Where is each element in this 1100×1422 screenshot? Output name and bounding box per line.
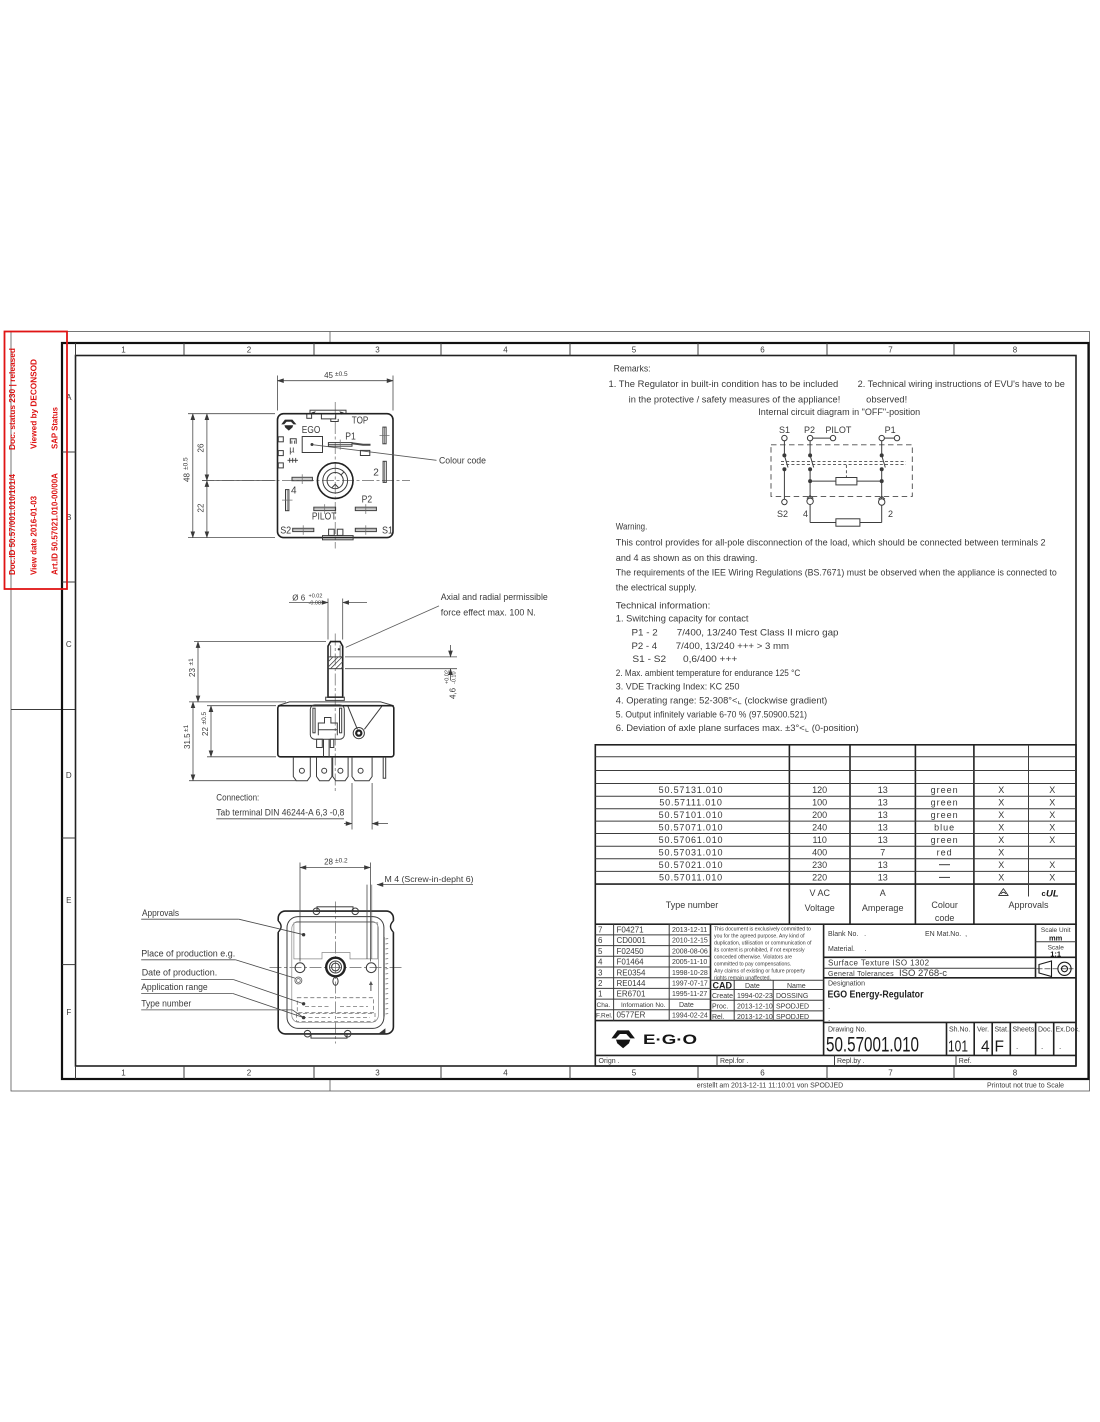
svg-text:X: X [998, 798, 1004, 808]
svg-text:Type number: Type number [666, 900, 719, 910]
svg-text:4: 4 [803, 509, 808, 519]
svg-text:Doc. status 230 | released: Doc. status 230 | released [8, 348, 17, 450]
svg-text:1:1: 1:1 [1050, 950, 1061, 959]
svg-text:13: 13 [878, 810, 888, 820]
svg-text:F.Rel.: F.Rel. [596, 1013, 613, 1020]
svg-text:3: 3 [375, 1069, 380, 1078]
svg-text:committed to pay compensations: committed to pay compensations. [714, 962, 791, 968]
svg-text:Any claims of existing or futu: Any claims of existing or future propert… [714, 969, 806, 975]
svg-text:X: X [1049, 873, 1055, 883]
svg-text:4: 4 [981, 1039, 990, 1056]
svg-text:erstellt am 2013-12-11 11:10:0: erstellt am 2013-12-11 11:10:01 von SPOD… [697, 1083, 843, 1090]
svg-text:400: 400 [812, 848, 827, 858]
svg-text:Sh.No.: Sh.No. [949, 1027, 970, 1034]
svg-text:230: 230 [812, 860, 827, 870]
svg-text:50.57071.010: 50.57071.010 [659, 823, 724, 833]
svg-text:.: . [1059, 1042, 1061, 1051]
svg-text:D: D [66, 771, 72, 780]
svg-text:4. Operating range: 52-308°<⌞: 4. Operating range: 52-308°<⌞ (clockwise… [616, 696, 828, 706]
svg-text:5. Output infinitely variable: 5. Output infinitely variable 6-70 % (97… [616, 710, 807, 720]
svg-text:Colour code: Colour code [439, 456, 486, 466]
svg-text:6: 6 [760, 346, 765, 355]
svg-text:2010-12-15: 2010-12-15 [672, 938, 708, 945]
svg-text:X: X [1049, 823, 1055, 833]
svg-text:22: 22 [201, 727, 210, 736]
svg-text:50.57101.010: 50.57101.010 [659, 810, 724, 820]
svg-text:P1: P1 [885, 425, 896, 435]
svg-text:2: 2 [247, 1069, 252, 1078]
svg-text:50.57061.010: 50.57061.010 [659, 835, 724, 845]
svg-text:S1: S1 [382, 525, 393, 536]
svg-text:Ex.Doc.: Ex.Doc. [1056, 1027, 1081, 1034]
svg-text:4: 4 [291, 486, 297, 497]
svg-text:and 4 as shown as on this draw: and 4 as shown as on this drawing. [616, 553, 758, 563]
svg-text:Connection:: Connection: [216, 793, 259, 803]
svg-text:4: 4 [503, 1069, 508, 1078]
svg-text:µ: µ [289, 445, 294, 455]
svg-text:View date 2016-01-03: View date 2016-01-03 [29, 495, 38, 575]
svg-text:SPODJED: SPODJED [776, 1014, 809, 1021]
svg-text:X: X [1049, 798, 1055, 808]
svg-text:7: 7 [598, 926, 603, 935]
svg-text:S1 - S2 0,6/400 +++: S1 - S2 0,6/400 +++ [632, 654, 737, 664]
svg-text:observed!: observed! [866, 395, 907, 405]
svg-text:Colour: Colour [931, 900, 958, 910]
svg-text:50.57131.010: 50.57131.010 [659, 785, 724, 795]
svg-text:X: X [1049, 835, 1055, 845]
svg-text:101: 101 [948, 1039, 968, 1056]
svg-text:5: 5 [598, 947, 603, 956]
svg-text:P2 - 4 7/400, 13/240 +++: P2 - 4 7/400, 13/240 +++ > 3 mm [632, 641, 790, 651]
svg-text:General Tolerances: General Tolerances [828, 971, 894, 978]
svg-text:This document is exclusively c: This document is exclusively committed t… [714, 927, 811, 933]
svg-text:7: 7 [888, 1069, 893, 1078]
svg-text:6: 6 [760, 1069, 765, 1078]
svg-text:S2: S2 [777, 509, 788, 519]
svg-text:PILOT: PILOT [312, 511, 337, 522]
svg-text:+0.02: +0.02 [445, 670, 451, 684]
svg-text:2. Max. ambient temperature f: 2. Max. ambient temperature for enduranc… [616, 668, 801, 678]
svg-text:F01464: F01464 [617, 958, 645, 967]
svg-text:8: 8 [1013, 346, 1018, 355]
svg-text:force effect max. 100 N.: force effect max. 100 N. [441, 608, 536, 618]
svg-text:1998-10-28: 1998-10-28 [672, 970, 708, 977]
svg-text:Drawing No.: Drawing No. [828, 1027, 867, 1034]
svg-text:48: 48 [183, 473, 192, 482]
svg-text:8: 8 [1013, 1069, 1018, 1078]
svg-text:2005-11-10: 2005-11-10 [672, 959, 707, 966]
svg-text:1997-07-17: 1997-07-17 [672, 981, 708, 988]
svg-text:X: X [1049, 785, 1055, 795]
svg-text:1: 1 [121, 1069, 126, 1078]
svg-text:X: X [998, 873, 1004, 883]
svg-text:Approvals: Approvals [1008, 900, 1049, 910]
svg-text:Sheets: Sheets [1013, 1027, 1035, 1034]
svg-text:22: 22 [197, 503, 206, 512]
svg-text:2: 2 [598, 979, 603, 988]
svg-text:1995-11-27: 1995-11-27 [672, 991, 707, 998]
svg-text:C: C [66, 640, 72, 649]
svg-text:-0.08: -0.08 [309, 600, 322, 606]
svg-text:TOP: TOP [352, 415, 369, 426]
svg-text:Technical information:: Technical information: [616, 601, 711, 611]
svg-text:+0.02: +0.02 [309, 593, 323, 599]
svg-text:110: 110 [813, 835, 827, 845]
svg-text:RE0144: RE0144 [617, 979, 646, 988]
svg-text:conceded otherwise. Violators: conceded otherwise. Violators are [714, 955, 792, 961]
svg-text:50.57021.010: 50.57021.010 [659, 860, 724, 870]
svg-text:X: X [998, 823, 1004, 833]
svg-text:50.57001.010: 50.57001.010 [826, 1034, 919, 1057]
svg-text:Type number: Type number [141, 998, 191, 1008]
svg-text:EGO: EGO [302, 425, 321, 436]
svg-text:Application range: Application range [141, 982, 208, 992]
svg-text:Ver.: Ver. [977, 1027, 989, 1034]
svg-text:Material. .: Material. . [828, 946, 867, 953]
svg-text:1994-02-24: 1994-02-24 [672, 1013, 708, 1020]
svg-text:DOSSING: DOSSING [776, 993, 808, 1000]
svg-text:4: 4 [503, 346, 508, 355]
svg-text:240: 240 [812, 823, 827, 833]
svg-text:0577ER: 0577ER [617, 1011, 646, 1020]
svg-text:±0.2: ±0.2 [335, 858, 348, 865]
svg-text:28: 28 [324, 858, 333, 867]
svg-text:Repl.by .: Repl.by . [837, 1058, 865, 1065]
svg-text:Ref.: Ref. [959, 1058, 972, 1065]
svg-text:X: X [998, 835, 1004, 845]
svg-text:13: 13 [878, 873, 888, 883]
svg-text:4: 4 [598, 958, 603, 967]
svg-text:Axial and radial permissible: Axial and radial permissible [441, 592, 548, 602]
svg-text:7: 7 [880, 848, 885, 858]
svg-text:P2: P2 [362, 494, 373, 505]
svg-text:Approvals: Approvals [142, 908, 179, 918]
svg-text:Information No.: Information No. [621, 1002, 666, 1009]
svg-text:Voltage: Voltage [805, 903, 835, 913]
svg-text:mm: mm [1049, 934, 1063, 943]
svg-text:ISO 2768-c: ISO 2768-c [899, 968, 947, 979]
svg-text:Printout not true to Scale: Printout not true to Scale [987, 1083, 1064, 1090]
svg-text:P1 - 2 7/400, 13/240 Tes: P1 - 2 7/400, 13/240 Test Class II micro… [632, 628, 839, 638]
svg-text:1: 1 [598, 990, 603, 999]
svg-text:Orign .: Orign . [599, 1058, 620, 1065]
svg-text:13: 13 [878, 835, 888, 845]
svg-text:you for the agreed purpose. An: you for the agreed purpose. Any kind of [714, 934, 805, 940]
svg-text:1. The Regulator in built-in c: 1. The Regulator in built-in condition h… [609, 379, 839, 389]
svg-text:5: 5 [632, 346, 637, 355]
svg-text:X: X [1049, 810, 1055, 820]
svg-text:the electrical supply.: the electrical supply. [616, 583, 697, 593]
svg-text:Stat.: Stat. [995, 1027, 1009, 1034]
svg-text:2: 2 [888, 509, 893, 519]
svg-text:EN Mat.No. ,: EN Mat.No. , [925, 931, 967, 938]
svg-text:Cha.: Cha. [597, 1002, 611, 1009]
svg-text:green: green [931, 810, 959, 820]
svg-text:Rel.: Rel. [712, 1014, 725, 1021]
svg-text:P1: P1 [345, 431, 356, 442]
svg-text:Surface Texture ISO 1302: Surface Texture ISO 1302 [828, 959, 930, 968]
svg-text:X: X [998, 810, 1004, 820]
svg-text:.: . [828, 1014, 830, 1023]
svg-text:3. VDE Tracking Index: KC 250: 3. VDE Tracking Index: KC 250 [616, 682, 740, 692]
svg-text:4,6: 4,6 [449, 687, 458, 699]
svg-text:2. Technical wiring instructio: 2. Technical wiring instructions of EVU'… [858, 379, 1065, 389]
svg-text:in the protective / safety mea: in the protective / safety measures of t… [629, 395, 841, 405]
svg-text:SPODJED: SPODJED [776, 1004, 809, 1011]
svg-text:green: green [931, 835, 959, 845]
svg-text:The requirements of the IEE Wi: The requirements of the IEE Wiring Regul… [616, 568, 1057, 578]
svg-text:RE0354: RE0354 [617, 968, 646, 977]
svg-text:Internal circuit diagram in "O: Internal circuit diagram in "OFF"-positi… [758, 407, 920, 417]
svg-text:2: 2 [373, 468, 379, 479]
svg-text:Proc.: Proc. [712, 1004, 728, 1011]
svg-text:2013-12-10: 2013-12-10 [737, 1004, 773, 1011]
svg-text:code: code [935, 913, 955, 923]
svg-text:CD0001: CD0001 [617, 936, 647, 945]
svg-text:X: X [998, 785, 1004, 795]
svg-text:green: green [931, 785, 959, 795]
svg-text:green: green [931, 798, 959, 808]
svg-text:±1: ±1 [183, 724, 190, 732]
svg-text:This control provides for all-: This control provides for all-pole disco… [616, 538, 1046, 548]
svg-text:ER6701: ER6701 [617, 990, 646, 999]
svg-text:50.57111.010: 50.57111.010 [659, 798, 722, 808]
svg-text:.: . [1016, 1042, 1018, 1051]
svg-text:its content is prohibited, if: its content is prohibited, if not expres… [714, 948, 805, 954]
svg-text:E·G·O: E·G·O [643, 1031, 697, 1047]
svg-text:13: 13 [878, 860, 888, 870]
svg-text:CAD: CAD [713, 981, 733, 991]
svg-text:Create: Create [712, 993, 733, 1000]
svg-text:220: 220 [812, 873, 827, 883]
svg-text:±1: ±1 [188, 658, 195, 666]
svg-text:1: 1 [121, 346, 126, 355]
svg-text:P2: P2 [804, 425, 815, 435]
svg-text:7: 7 [888, 346, 893, 355]
svg-text:EGO Energy-Regulator: EGO Energy-Regulator [828, 989, 924, 1001]
svg-text:Name: Name [787, 983, 806, 990]
svg-text:F: F [66, 1008, 71, 1017]
svg-text:Date of production.: Date of production. [142, 967, 218, 977]
svg-text:X: X [998, 848, 1004, 858]
svg-text:Repl.for .: Repl.for . [720, 1058, 748, 1065]
svg-text:Tab terminal DIN 46244-A 6,3 -: Tab terminal DIN 46244-A 6,3 -0,8 [216, 808, 344, 818]
svg-text:Ø 6: Ø 6 [292, 593, 305, 602]
svg-text:2013-12-10: 2013-12-10 [737, 1014, 773, 1021]
svg-text:Warning.: Warning. [616, 522, 648, 532]
svg-text:SAP Status: SAP Status [51, 406, 60, 449]
svg-text:-0.10: -0.10 [452, 671, 458, 684]
svg-text:X: X [998, 860, 1004, 870]
svg-text:M 4 (Screw-in-depht 6): M 4 (Screw-in-depht 6) [385, 875, 474, 884]
svg-text:UL: UL [1046, 889, 1059, 900]
svg-text:±0.5: ±0.5 [201, 712, 208, 725]
svg-text:.: . [828, 1002, 830, 1011]
svg-text:Date: Date [745, 983, 760, 990]
svg-text:200: 200 [812, 810, 827, 820]
svg-text:13: 13 [878, 798, 888, 808]
svg-text:13: 13 [878, 785, 888, 795]
svg-text:3: 3 [375, 346, 380, 355]
svg-text:6. Deviation of axle plane su: 6. Deviation of axle plane surfaces max.… [616, 723, 859, 733]
svg-text:red: red [937, 848, 953, 858]
svg-text:5: 5 [632, 1069, 637, 1078]
svg-text:E: E [66, 896, 71, 905]
svg-text:45: 45 [324, 371, 333, 380]
svg-text:26: 26 [197, 443, 206, 452]
svg-text:23: 23 [188, 668, 197, 677]
svg-text:50.57011.010: 50.57011.010 [659, 873, 723, 883]
svg-text:duplication, utilisation or co: duplication, utilisation or communicatio… [714, 941, 812, 947]
svg-text:S1: S1 [779, 425, 790, 435]
svg-text:2: 2 [247, 346, 252, 355]
svg-text:Remarks:: Remarks: [614, 364, 651, 374]
svg-text:120: 120 [812, 785, 827, 795]
svg-text:Doc.ID 50.57/001.010/101/4: Doc.ID 50.57/001.010/101/4 [8, 473, 17, 575]
svg-text:3: 3 [598, 968, 603, 977]
svg-text:50.57031.010: 50.57031.010 [659, 848, 724, 858]
svg-text:Place of production e.g.: Place of production e.g. [141, 948, 235, 958]
svg-text:F02450: F02450 [617, 947, 645, 956]
svg-text:PILOT: PILOT [825, 425, 852, 435]
svg-text:F: F [995, 1039, 1004, 1056]
svg-text:2013-12-11: 2013-12-11 [672, 927, 707, 934]
svg-text:1994-02-23: 1994-02-23 [737, 993, 773, 1000]
svg-text:Blank No. .: Blank No. . [828, 931, 866, 938]
svg-text:V AC: V AC [809, 888, 830, 898]
svg-text:Amperage: Amperage [862, 903, 904, 913]
svg-text:A: A [880, 888, 886, 898]
svg-text:Art.ID 50.57021.010-00/00A: Art.ID 50.57021.010-00/00A [51, 473, 60, 575]
svg-text:Doc.: Doc. [1038, 1027, 1052, 1034]
svg-text:blue: blue [934, 823, 955, 833]
svg-text:.: . [1041, 1042, 1043, 1051]
svg-text:±0.5: ±0.5 [183, 457, 190, 470]
svg-text:31.5: 31.5 [183, 733, 192, 749]
svg-text:100: 100 [812, 798, 827, 808]
svg-text:2008-08-06: 2008-08-06 [672, 948, 708, 955]
svg-text:Designation: Designation [828, 981, 865, 988]
svg-text:Date: Date [679, 1002, 694, 1009]
svg-text:S2: S2 [280, 525, 291, 536]
svg-text:±0.5: ±0.5 [335, 371, 348, 378]
svg-text:F04271: F04271 [617, 926, 645, 935]
svg-text:X: X [1049, 860, 1055, 870]
svg-text:6: 6 [598, 936, 603, 945]
svg-text:13: 13 [878, 823, 888, 833]
svg-text:1. Switching capacity for con: 1. Switching capacity for contact [616, 614, 749, 624]
svg-text:Viewed by DECONSOD: Viewed by DECONSOD [29, 359, 38, 449]
